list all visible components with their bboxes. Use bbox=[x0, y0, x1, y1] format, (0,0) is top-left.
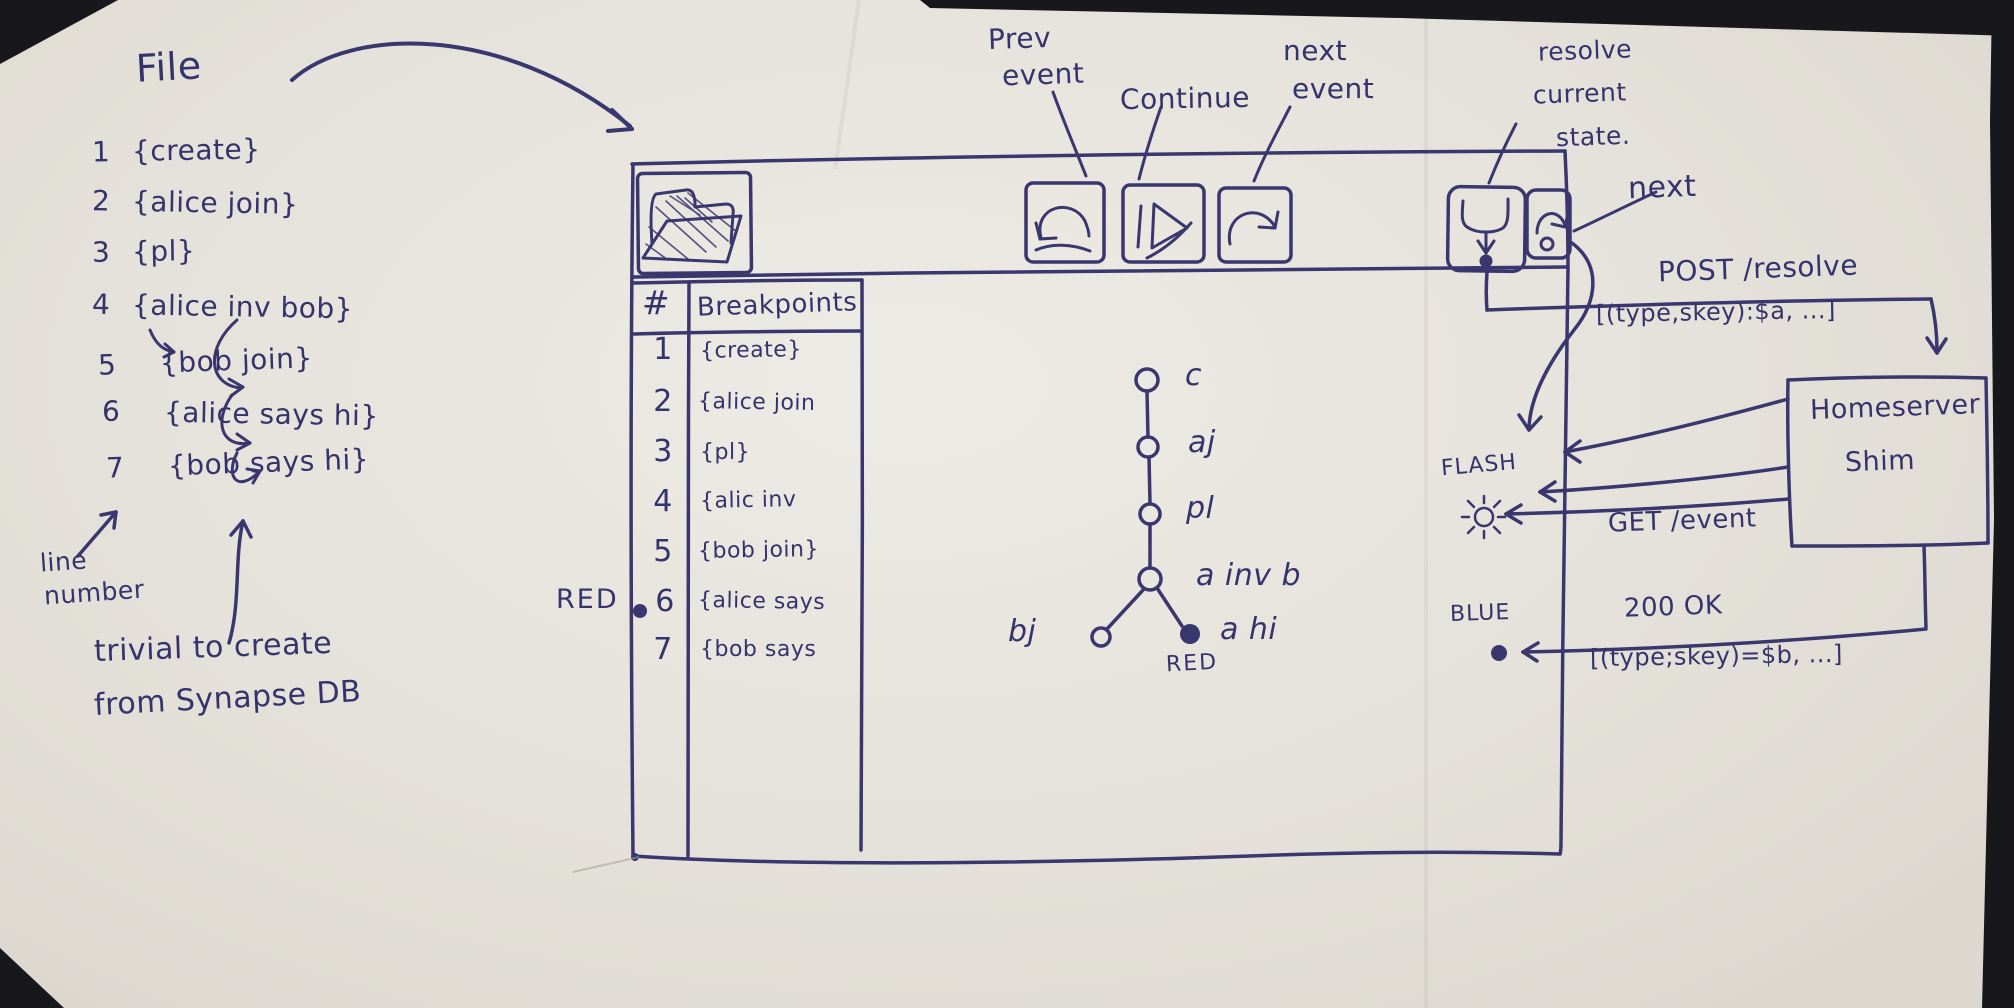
blue-label: BLUE bbox=[1450, 601, 1511, 626]
response-label: 200 OK bbox=[1624, 592, 1723, 623]
dag-node-pl bbox=[1140, 504, 1160, 524]
line-text: {alice inv bob} bbox=[132, 288, 354, 325]
trivial-note-arrow bbox=[229, 521, 251, 643]
blue-state-dot bbox=[1491, 645, 1507, 661]
table-row-text: {alice says bbox=[698, 589, 826, 614]
line-text: {create} bbox=[132, 133, 261, 168]
red-breakpoint-label: RED bbox=[556, 586, 619, 614]
dag-red-label: RED bbox=[1165, 651, 1218, 677]
post-body-label: [(type,skey):$a, ...] bbox=[1596, 298, 1836, 327]
resolve-state-label: state. bbox=[1556, 123, 1631, 152]
file-to-window-arrow bbox=[292, 44, 632, 131]
line-no: 3 bbox=[92, 237, 133, 267]
table-row-text: {alice join bbox=[698, 390, 816, 415]
line-text: {pl} bbox=[132, 234, 196, 268]
step-over-icon bbox=[1537, 213, 1568, 250]
table-row-num: 3 bbox=[646, 436, 680, 468]
file-line-1: 1{create} bbox=[92, 135, 261, 167]
dag-node-alice-join bbox=[1138, 437, 1158, 457]
file-line-5: 5{bob join} bbox=[98, 343, 314, 380]
get-event-label: GET /event bbox=[1608, 505, 1757, 537]
table-row-num: 6 bbox=[648, 586, 682, 618]
table-row-num: 7 bbox=[646, 634, 680, 666]
file-line-3: 3{pl} bbox=[92, 236, 196, 267]
line-no: 6 bbox=[102, 397, 165, 427]
next-event-label: next bbox=[1283, 36, 1347, 65]
file-panel-title: File bbox=[135, 46, 203, 89]
next-flow-arrow bbox=[1519, 243, 1593, 430]
resolve-state-label: current bbox=[1533, 79, 1628, 109]
table-row-text: {pl} bbox=[700, 441, 750, 464]
table-row-text: {alic inv bbox=[700, 488, 797, 513]
file-line-4: 4{alice inv bob} bbox=[92, 290, 354, 324]
prev-event-label: event bbox=[1002, 59, 1085, 91]
line-no: 7 bbox=[106, 451, 169, 483]
next-event-button bbox=[1219, 188, 1291, 262]
table-row-num: 1 bbox=[646, 334, 680, 366]
table-row-num: 5 bbox=[646, 536, 680, 568]
line-number-note: line bbox=[39, 547, 88, 576]
merge-icon bbox=[1462, 199, 1508, 268]
table-col-title-header: Breakpoints bbox=[697, 289, 858, 322]
table-row-num: 4 bbox=[646, 486, 680, 518]
event-dag bbox=[1092, 369, 1200, 646]
toolbar-buttons bbox=[637, 172, 1570, 273]
file-line-6: 6{alice says hi} bbox=[102, 397, 379, 431]
file-line-2: 2{alice join} bbox=[92, 186, 299, 219]
table-row-text: {bob join} bbox=[698, 538, 819, 563]
table-row-num: 2 bbox=[646, 386, 680, 418]
flash-marker bbox=[1462, 496, 1505, 538]
dag-node-bob-join bbox=[1092, 628, 1110, 646]
dag-label-a-hi: a hi bbox=[1220, 614, 1277, 646]
dag-label-c: c bbox=[1185, 360, 1202, 392]
line-text: {alice says hi} bbox=[164, 396, 379, 433]
red-breakpoint-dot bbox=[633, 604, 647, 618]
undo-arrow-icon bbox=[1036, 207, 1090, 251]
line-no: 1 bbox=[92, 137, 133, 167]
dag-node-a-hi-red bbox=[1180, 624, 1200, 644]
dag-label-bj: bj bbox=[1008, 616, 1036, 648]
table-col-num-header: # bbox=[642, 286, 670, 321]
dag-label-aj: aj bbox=[1188, 427, 1216, 459]
continue-label: Continue bbox=[1120, 83, 1250, 115]
table-row-text: {bob says bbox=[700, 638, 816, 661]
line-no: 2 bbox=[92, 186, 133, 216]
next-button-label: next bbox=[1627, 171, 1697, 205]
pencil-mark bbox=[573, 857, 639, 872]
response-body-label: [(type;skey)=$b, ...] bbox=[1590, 642, 1843, 672]
resolve-state-label: resolve bbox=[1538, 36, 1633, 66]
prev-event-label: Prev bbox=[988, 23, 1052, 55]
line-text: {bob says hi} bbox=[167, 442, 369, 482]
table-row-text: {create} bbox=[700, 338, 802, 363]
play-icon bbox=[1138, 204, 1191, 258]
sketch-photo: File 1{create} 2{alice join} 3{pl} 4{ali… bbox=[0, 0, 2014, 1008]
line-text: {bob join} bbox=[159, 341, 313, 379]
dag-node-create bbox=[1136, 369, 1158, 391]
line-no: 5 bbox=[98, 349, 161, 381]
next-event-label: event bbox=[1292, 74, 1374, 103]
dag-label-a-inv-b: a inv b bbox=[1196, 560, 1301, 592]
homeserver-shim-title: Shim bbox=[1845, 447, 1916, 478]
dag-node-a-inv-b bbox=[1139, 568, 1161, 590]
line-no: 4 bbox=[92, 290, 133, 320]
redo-arrow-icon bbox=[1229, 212, 1278, 244]
homeserver-shim-title: Homeserver bbox=[1810, 391, 1981, 425]
footnote-line1: trivial to create bbox=[94, 628, 333, 668]
post-resolve-label: POST /resolve bbox=[1658, 251, 1859, 287]
line-text: {alice join} bbox=[132, 185, 299, 221]
dag-label-pl: pl bbox=[1186, 493, 1214, 525]
folder-icon bbox=[643, 190, 741, 262]
